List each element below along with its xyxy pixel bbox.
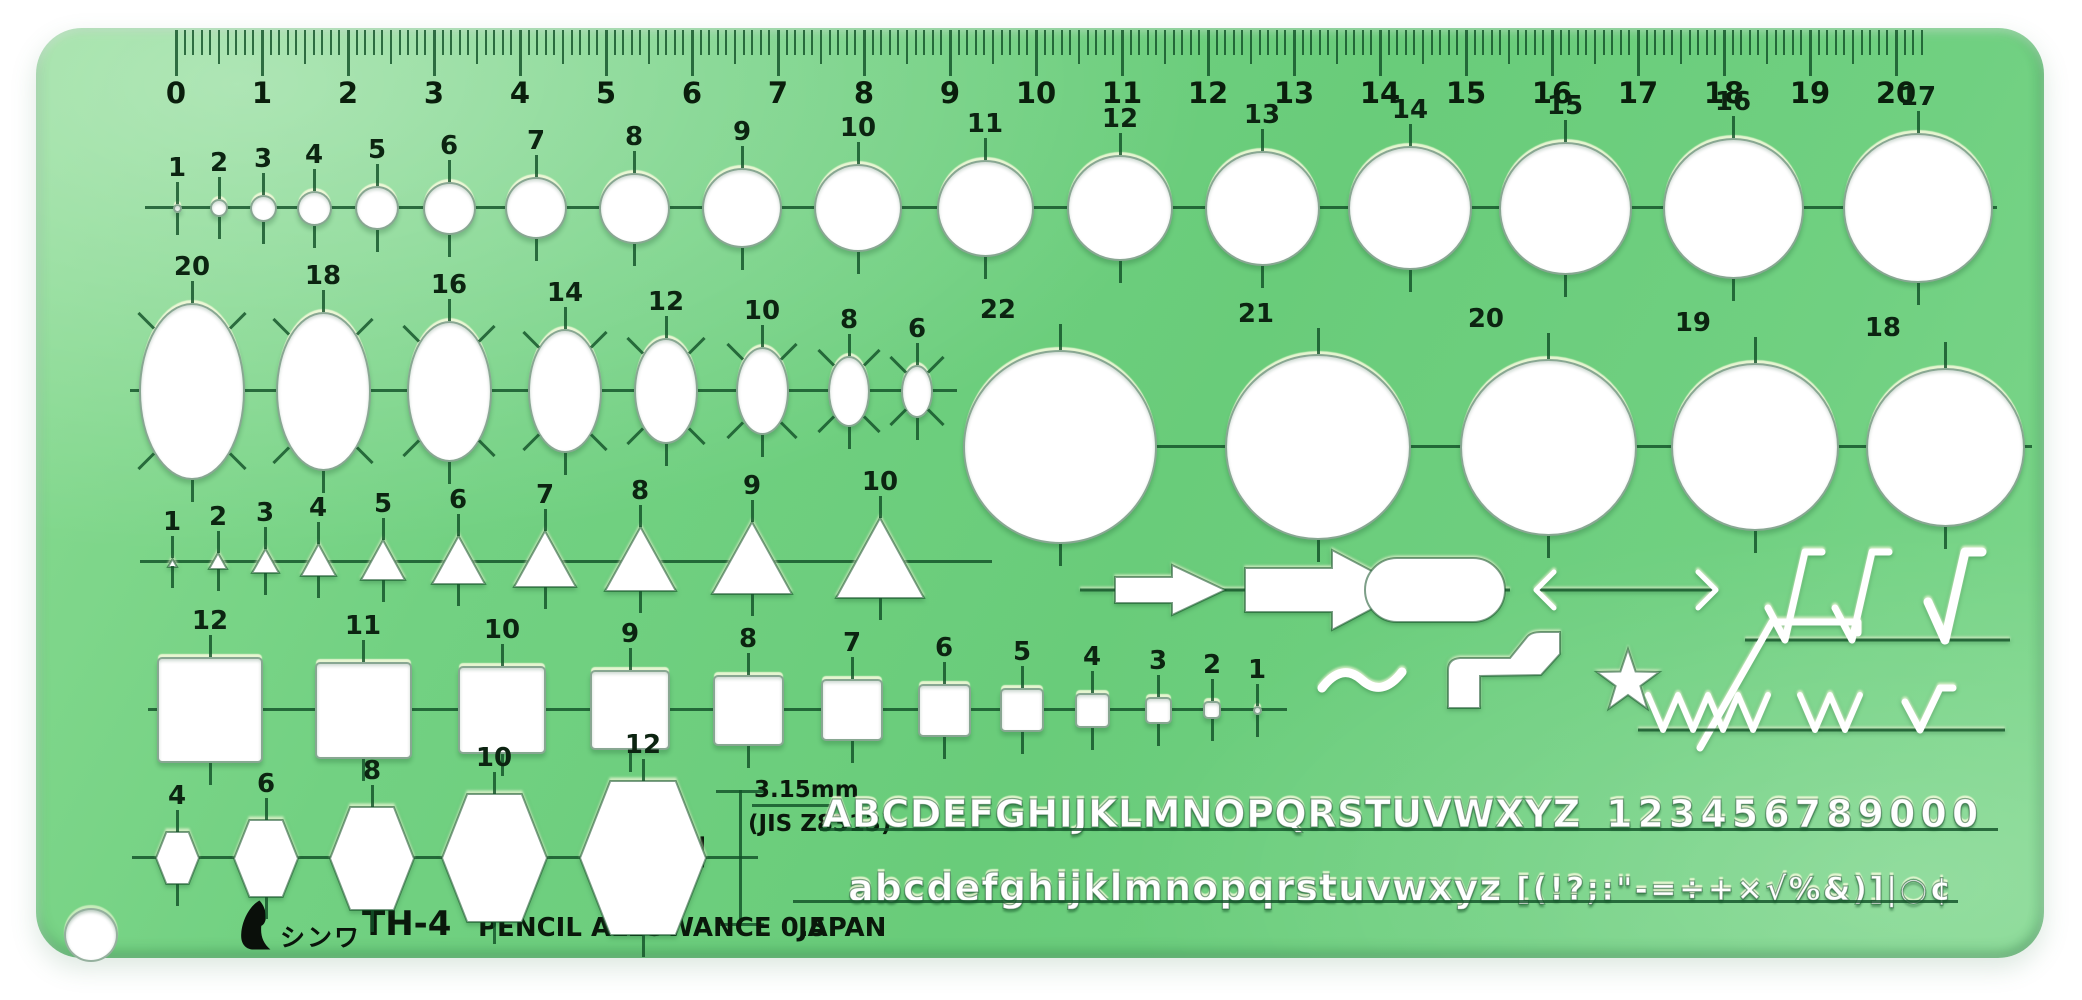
registration-tick — [218, 177, 221, 199]
triangle-cutout — [602, 524, 679, 594]
ruler-tick — [1594, 30, 1596, 64]
hexagon-cutout — [577, 778, 709, 938]
ruler-tick — [1431, 30, 1433, 55]
registration-tick — [382, 518, 385, 540]
ruler-tick — [192, 30, 194, 55]
hexagon-cutout — [153, 829, 202, 887]
ruler-tick — [1534, 30, 1536, 55]
ruler-tick — [1628, 30, 1630, 55]
ruler-tick — [1018, 30, 1020, 55]
registration-tick — [376, 230, 379, 252]
capsule-terminator-icon — [1365, 558, 1505, 622]
stencil-lowercase: abcdefghijklmnopqrstuvwxyz — [848, 866, 1502, 910]
ruler-tick — [1439, 30, 1441, 55]
registration-tick — [544, 587, 547, 609]
ruler-tick — [1904, 30, 1906, 55]
ruler-tick — [682, 30, 684, 55]
zigzag-finish-marks-icon — [1638, 688, 2005, 730]
ruler-tick — [1740, 30, 1742, 55]
ruler-tick — [1663, 30, 1665, 55]
ruler-tick — [1370, 30, 1372, 55]
square-cutout — [1203, 701, 1221, 719]
registration-tick — [313, 169, 316, 191]
pointer-flag-icon — [1448, 632, 1560, 708]
size-label: 9 — [598, 620, 662, 648]
ruler-tick — [1757, 30, 1759, 55]
ruler-number: 19 — [1785, 78, 1835, 108]
registration-tick — [879, 496, 882, 518]
ruler-tick — [614, 30, 616, 55]
hexagon-cutout — [231, 817, 301, 900]
square-cutout — [918, 684, 971, 737]
ruler-tick — [553, 30, 555, 55]
ruler-tick — [1912, 30, 1914, 55]
size-label: 9 — [710, 118, 774, 146]
ruler-tick — [1087, 30, 1089, 55]
ruler-tick — [820, 30, 822, 64]
registration-tick — [501, 644, 504, 666]
size-label: 6 — [912, 634, 976, 662]
ruler-tick — [1826, 30, 1828, 55]
registration-tick — [1091, 671, 1094, 693]
square-cutout — [458, 666, 546, 754]
registration-tick — [262, 173, 265, 195]
registration-tick — [1564, 275, 1567, 297]
ruler-tick — [1491, 30, 1493, 55]
ruler-tick — [1164, 30, 1166, 64]
photo-stage: 12 3.15mm (JIS Z8313) ABCDEFGHIJKLMNOPQR… — [0, 0, 2082, 1000]
ruler-tick — [1895, 30, 1898, 76]
registration-tick — [751, 594, 754, 616]
size-label: 12 — [634, 288, 698, 316]
size-label: 7 — [820, 629, 884, 657]
ruler-tick — [923, 30, 925, 55]
size-label: 10 — [730, 297, 794, 325]
ruler-tick — [1302, 30, 1304, 55]
ruler-number: 9 — [925, 78, 975, 108]
ruler-tick — [648, 30, 650, 64]
ruler-tick — [1843, 30, 1845, 55]
registration-tick — [535, 239, 538, 261]
ruler-tick — [510, 30, 512, 55]
ruler-number: 0 — [151, 78, 201, 108]
triangle-cutout — [298, 541, 339, 579]
registration-tick — [493, 922, 496, 944]
ruler-tick — [356, 30, 358, 55]
ruler-tick — [1293, 30, 1296, 76]
registration-tick — [1547, 333, 1550, 359]
ruler-tick — [1319, 30, 1321, 55]
registration-tick — [1256, 715, 1259, 737]
ruler-tick — [1009, 30, 1011, 55]
ruler-tick — [1861, 30, 1863, 55]
registration-tick — [1059, 324, 1062, 350]
ruler-tick — [1001, 30, 1003, 55]
ruler-tick — [1310, 30, 1312, 55]
registration-tick — [848, 427, 851, 449]
ruler-number: 3 — [409, 78, 459, 108]
circle-cutout — [702, 168, 782, 248]
size-label: 5 — [351, 490, 415, 518]
ruler-number: 7 — [753, 78, 803, 108]
ruler-tick — [1069, 30, 1071, 55]
registration-tick — [171, 566, 174, 588]
large-circle-cutout — [963, 350, 1157, 544]
registration-tick — [1157, 724, 1160, 746]
country-label: JAPAN — [798, 914, 886, 943]
ruler-tick — [837, 30, 839, 55]
registration-tick — [629, 648, 632, 670]
registration-tick — [176, 884, 179, 906]
registration-tick — [493, 772, 496, 794]
size-label: 4 — [145, 782, 209, 810]
ruler-tick — [932, 30, 934, 55]
ruler-tick — [1525, 30, 1527, 55]
registration-tick — [317, 576, 320, 598]
ruler-tick — [579, 30, 581, 55]
square-cutout — [1075, 693, 1110, 728]
ruler-tick — [235, 30, 237, 55]
ruler-tick — [975, 30, 977, 55]
triangle-cutout — [511, 528, 579, 590]
size-label: 8 — [602, 123, 666, 151]
registration-tick — [218, 217, 221, 239]
ruler-number: 8 — [839, 78, 889, 108]
registration-tick — [984, 138, 987, 160]
ruler-tick — [502, 30, 504, 55]
ruler-tick — [1147, 30, 1149, 55]
size-label: 8 — [716, 625, 780, 653]
registration-tick — [317, 522, 320, 544]
ruler-tick — [897, 30, 899, 55]
registration-tick — [761, 325, 764, 347]
ruler-tick — [1792, 30, 1794, 55]
registration-tick — [1256, 684, 1259, 706]
ruler-tick — [631, 30, 633, 55]
large-circle-cutout — [1460, 359, 1637, 536]
size-label: 1 — [1225, 656, 1289, 684]
circle-cutout — [1067, 155, 1173, 261]
ruler-tick — [691, 30, 694, 76]
ruler-tick — [777, 30, 780, 76]
ruler-tick — [1044, 30, 1046, 55]
size-label: 15 — [1533, 92, 1597, 120]
registration-tick — [1754, 531, 1757, 553]
ruler-tick — [1818, 30, 1820, 55]
ruler-tick — [605, 30, 608, 76]
ruler-tick — [1577, 30, 1579, 55]
ruler-tick — [1465, 30, 1468, 76]
ruler-tick — [1190, 30, 1192, 55]
tilde-wave-icon — [1322, 672, 1402, 688]
registration-tick — [362, 640, 365, 662]
ruler-tick — [1224, 30, 1226, 55]
circle-cutout — [814, 164, 902, 252]
ruler-tick — [1284, 30, 1286, 55]
registration-tick — [382, 580, 385, 602]
ruler-tick — [1551, 30, 1554, 76]
triangle-cutout — [429, 533, 488, 587]
registration-tick — [741, 248, 744, 270]
ruler-tick — [1560, 30, 1562, 55]
triangle-cutout — [249, 546, 282, 576]
ruler-tick — [588, 30, 590, 55]
ruler-tick — [1413, 30, 1415, 55]
size-label: 21 — [1210, 300, 1274, 328]
registration-tick — [916, 418, 919, 440]
ruler-tick — [1422, 30, 1424, 64]
brand-text: シンワ — [280, 918, 361, 954]
size-label: 19 — [1647, 309, 1711, 337]
registration-tick — [564, 453, 567, 475]
surface-finish-checks-icon — [1745, 552, 2010, 640]
registration-tick — [639, 505, 642, 527]
registration-tick — [1317, 540, 1320, 562]
registration-tick — [371, 910, 374, 932]
ruler-tick — [1680, 30, 1682, 64]
registration-tick — [747, 746, 750, 768]
registration-tick — [1261, 266, 1264, 288]
size-label: 17 — [1886, 83, 1950, 111]
ruler-tick — [1775, 30, 1777, 55]
ruler-tick — [1714, 30, 1716, 55]
ruler-tick — [184, 30, 186, 55]
circle-cutout — [1843, 133, 1993, 283]
ruler-tick — [321, 30, 323, 55]
ruler-tick — [252, 30, 254, 55]
ruler-tick — [278, 30, 280, 55]
ruler-tick — [872, 30, 874, 55]
size-label: 14 — [1378, 96, 1442, 124]
ruler-tick — [1035, 30, 1038, 76]
square-cutout — [1145, 697, 1172, 724]
ruler-tick — [1646, 30, 1648, 55]
ruler-tick — [270, 30, 272, 55]
size-label: 10 — [826, 114, 890, 142]
registration-tick — [943, 737, 946, 759]
registration-tick — [1157, 675, 1160, 697]
ruler-tick — [734, 30, 736, 64]
registration-tick — [642, 935, 645, 957]
ruler-tick — [407, 30, 409, 55]
ruler-tick — [915, 30, 917, 55]
registration-tick — [1261, 129, 1264, 151]
ruler-tick — [1499, 30, 1501, 55]
ruler-tick — [1130, 30, 1132, 55]
ruler-tick — [717, 30, 719, 55]
registration-tick — [639, 591, 642, 613]
registration-tick — [1564, 120, 1567, 142]
ruler-tick — [811, 30, 813, 55]
registration-tick — [633, 151, 636, 173]
registration-tick — [265, 798, 268, 820]
ruler-tick — [751, 30, 753, 55]
ruler-number: 10 — [1011, 78, 1061, 108]
registration-tick — [322, 290, 325, 312]
square-cutout — [157, 657, 263, 763]
ruler-tick — [416, 30, 418, 55]
ruler-number: 5 — [581, 78, 631, 108]
ruler-tick — [330, 30, 332, 55]
ruler-tick — [958, 30, 960, 55]
registration-tick — [747, 653, 750, 675]
ruler-tick — [1474, 30, 1476, 55]
ruler-tick — [1388, 30, 1390, 55]
circle-cutout — [1663, 138, 1804, 279]
ruler-tick — [992, 30, 994, 64]
ruler-tick — [639, 30, 641, 55]
ruler-tick — [1800, 30, 1802, 55]
registration-tick — [1732, 116, 1735, 138]
ruler-number: 17 — [1613, 78, 1663, 108]
ruler-tick — [1456, 30, 1458, 55]
ruler-tick — [1379, 30, 1382, 76]
ruler-number: 12 — [1183, 78, 1233, 108]
ruler-tick — [1482, 30, 1484, 55]
registration-tick — [1059, 544, 1062, 566]
registration-tick — [857, 252, 860, 274]
ruler-tick — [1585, 30, 1587, 55]
ruler-tick — [459, 30, 461, 55]
ruler-tick — [175, 30, 178, 76]
ruler-tick — [450, 30, 452, 55]
ruler-tick — [743, 30, 745, 55]
triangle-cutout — [358, 537, 408, 583]
ruler-tick — [1259, 30, 1261, 55]
ruler-tick — [373, 30, 375, 55]
registration-tick — [761, 435, 764, 457]
ruler-tick — [906, 30, 908, 64]
ruler-tick — [768, 30, 770, 55]
ruler-tick — [1155, 30, 1157, 55]
circle-cutout — [250, 195, 277, 222]
ruler-tick — [244, 30, 246, 55]
registration-tick — [848, 334, 851, 356]
circle-cutout — [297, 191, 332, 226]
registration-tick — [1119, 133, 1122, 155]
ruler-tick — [665, 30, 667, 55]
registration-tick — [943, 662, 946, 684]
registration-tick — [1917, 283, 1920, 305]
ruler-tick — [1405, 30, 1407, 55]
ruler-tick — [390, 30, 392, 64]
circle-cutout — [1205, 151, 1320, 266]
guide-line-7 — [793, 900, 1958, 903]
ruler-tick — [1542, 30, 1544, 55]
registration-tick — [851, 657, 854, 679]
registration-tick — [741, 146, 744, 168]
ruler-tick — [1732, 30, 1734, 55]
ruler-tick — [313, 30, 315, 55]
size-label: 11 — [953, 110, 1017, 138]
ruler-tick — [1104, 30, 1106, 55]
ruler-tick — [536, 30, 538, 55]
size-label: 12 — [611, 731, 675, 759]
large-circle-cutout — [1671, 363, 1839, 531]
registration-tick — [1021, 666, 1024, 688]
size-label: 8 — [608, 477, 672, 505]
ruler-tick — [1766, 30, 1768, 64]
ruler-tick — [1207, 30, 1210, 76]
size-label: 20 — [1440, 305, 1504, 333]
ruler-tick — [1112, 30, 1114, 55]
ruler-tick — [295, 30, 297, 55]
ruler-tick — [1869, 30, 1871, 55]
size-label: 10 — [848, 468, 912, 496]
ruler-tick — [1353, 30, 1355, 55]
ruler-tick — [1138, 30, 1140, 55]
registration-tick — [857, 142, 860, 164]
registration-tick — [1317, 328, 1320, 354]
registration-tick — [1754, 337, 1757, 363]
size-label: 5 — [990, 638, 1054, 666]
registration-tick — [1547, 536, 1550, 558]
ruler-tick — [287, 30, 289, 55]
guide-line-6 — [820, 828, 1998, 831]
registration-tick — [176, 182, 179, 204]
size-label: 4 — [282, 141, 346, 169]
ruler-tick — [485, 30, 487, 55]
registration-tick — [1409, 270, 1412, 292]
ruler-tick — [1250, 30, 1252, 64]
ruler-tick — [1723, 30, 1726, 76]
ruler-tick — [794, 30, 796, 55]
ruler-tick — [1508, 30, 1510, 64]
registration-tick — [1944, 527, 1947, 549]
registration-tick — [1211, 679, 1214, 701]
registration-tick — [1917, 111, 1920, 133]
size-label: 10 — [470, 616, 534, 644]
size-label: 16 — [417, 271, 481, 299]
size-label: 13 — [1230, 101, 1294, 129]
ruler-tick — [1448, 30, 1450, 55]
registration-tick — [879, 598, 882, 620]
ruler-tick — [760, 30, 762, 55]
ruler-tick — [1362, 30, 1364, 55]
ruler-tick — [966, 30, 968, 55]
circle-cutout — [599, 173, 670, 244]
ruler-tick — [940, 30, 942, 55]
ruler-tick — [1654, 30, 1656, 55]
size-label: 12 — [1088, 105, 1152, 133]
size-label: 11 — [331, 612, 395, 640]
ruler-tick — [1517, 30, 1519, 55]
ruler-number: 2 — [323, 78, 373, 108]
ruler-tick — [1809, 30, 1812, 76]
circle-cutout — [355, 186, 399, 230]
ruler-tick — [700, 30, 702, 55]
size-label: 7 — [504, 127, 568, 155]
registration-tick — [265, 897, 268, 919]
hanging-hole — [64, 908, 118, 962]
circle-cutout — [173, 204, 182, 213]
ruler-tick — [1173, 30, 1175, 55]
ruler-tick — [1671, 30, 1673, 55]
triangle-cutout — [833, 515, 927, 601]
ruler-tick — [1216, 30, 1218, 55]
registration-tick — [176, 810, 179, 832]
registration-tick — [191, 480, 194, 502]
registration-tick — [457, 584, 460, 606]
ruler-tick — [1327, 30, 1329, 55]
ruler-tick — [209, 30, 211, 55]
ruler-tick — [442, 30, 444, 55]
size-label: 4 — [286, 494, 350, 522]
penguin-logo-icon — [234, 896, 274, 954]
ruler-tick — [424, 30, 426, 55]
size-label: 16 — [1701, 88, 1765, 116]
ruler-tick — [725, 30, 727, 55]
